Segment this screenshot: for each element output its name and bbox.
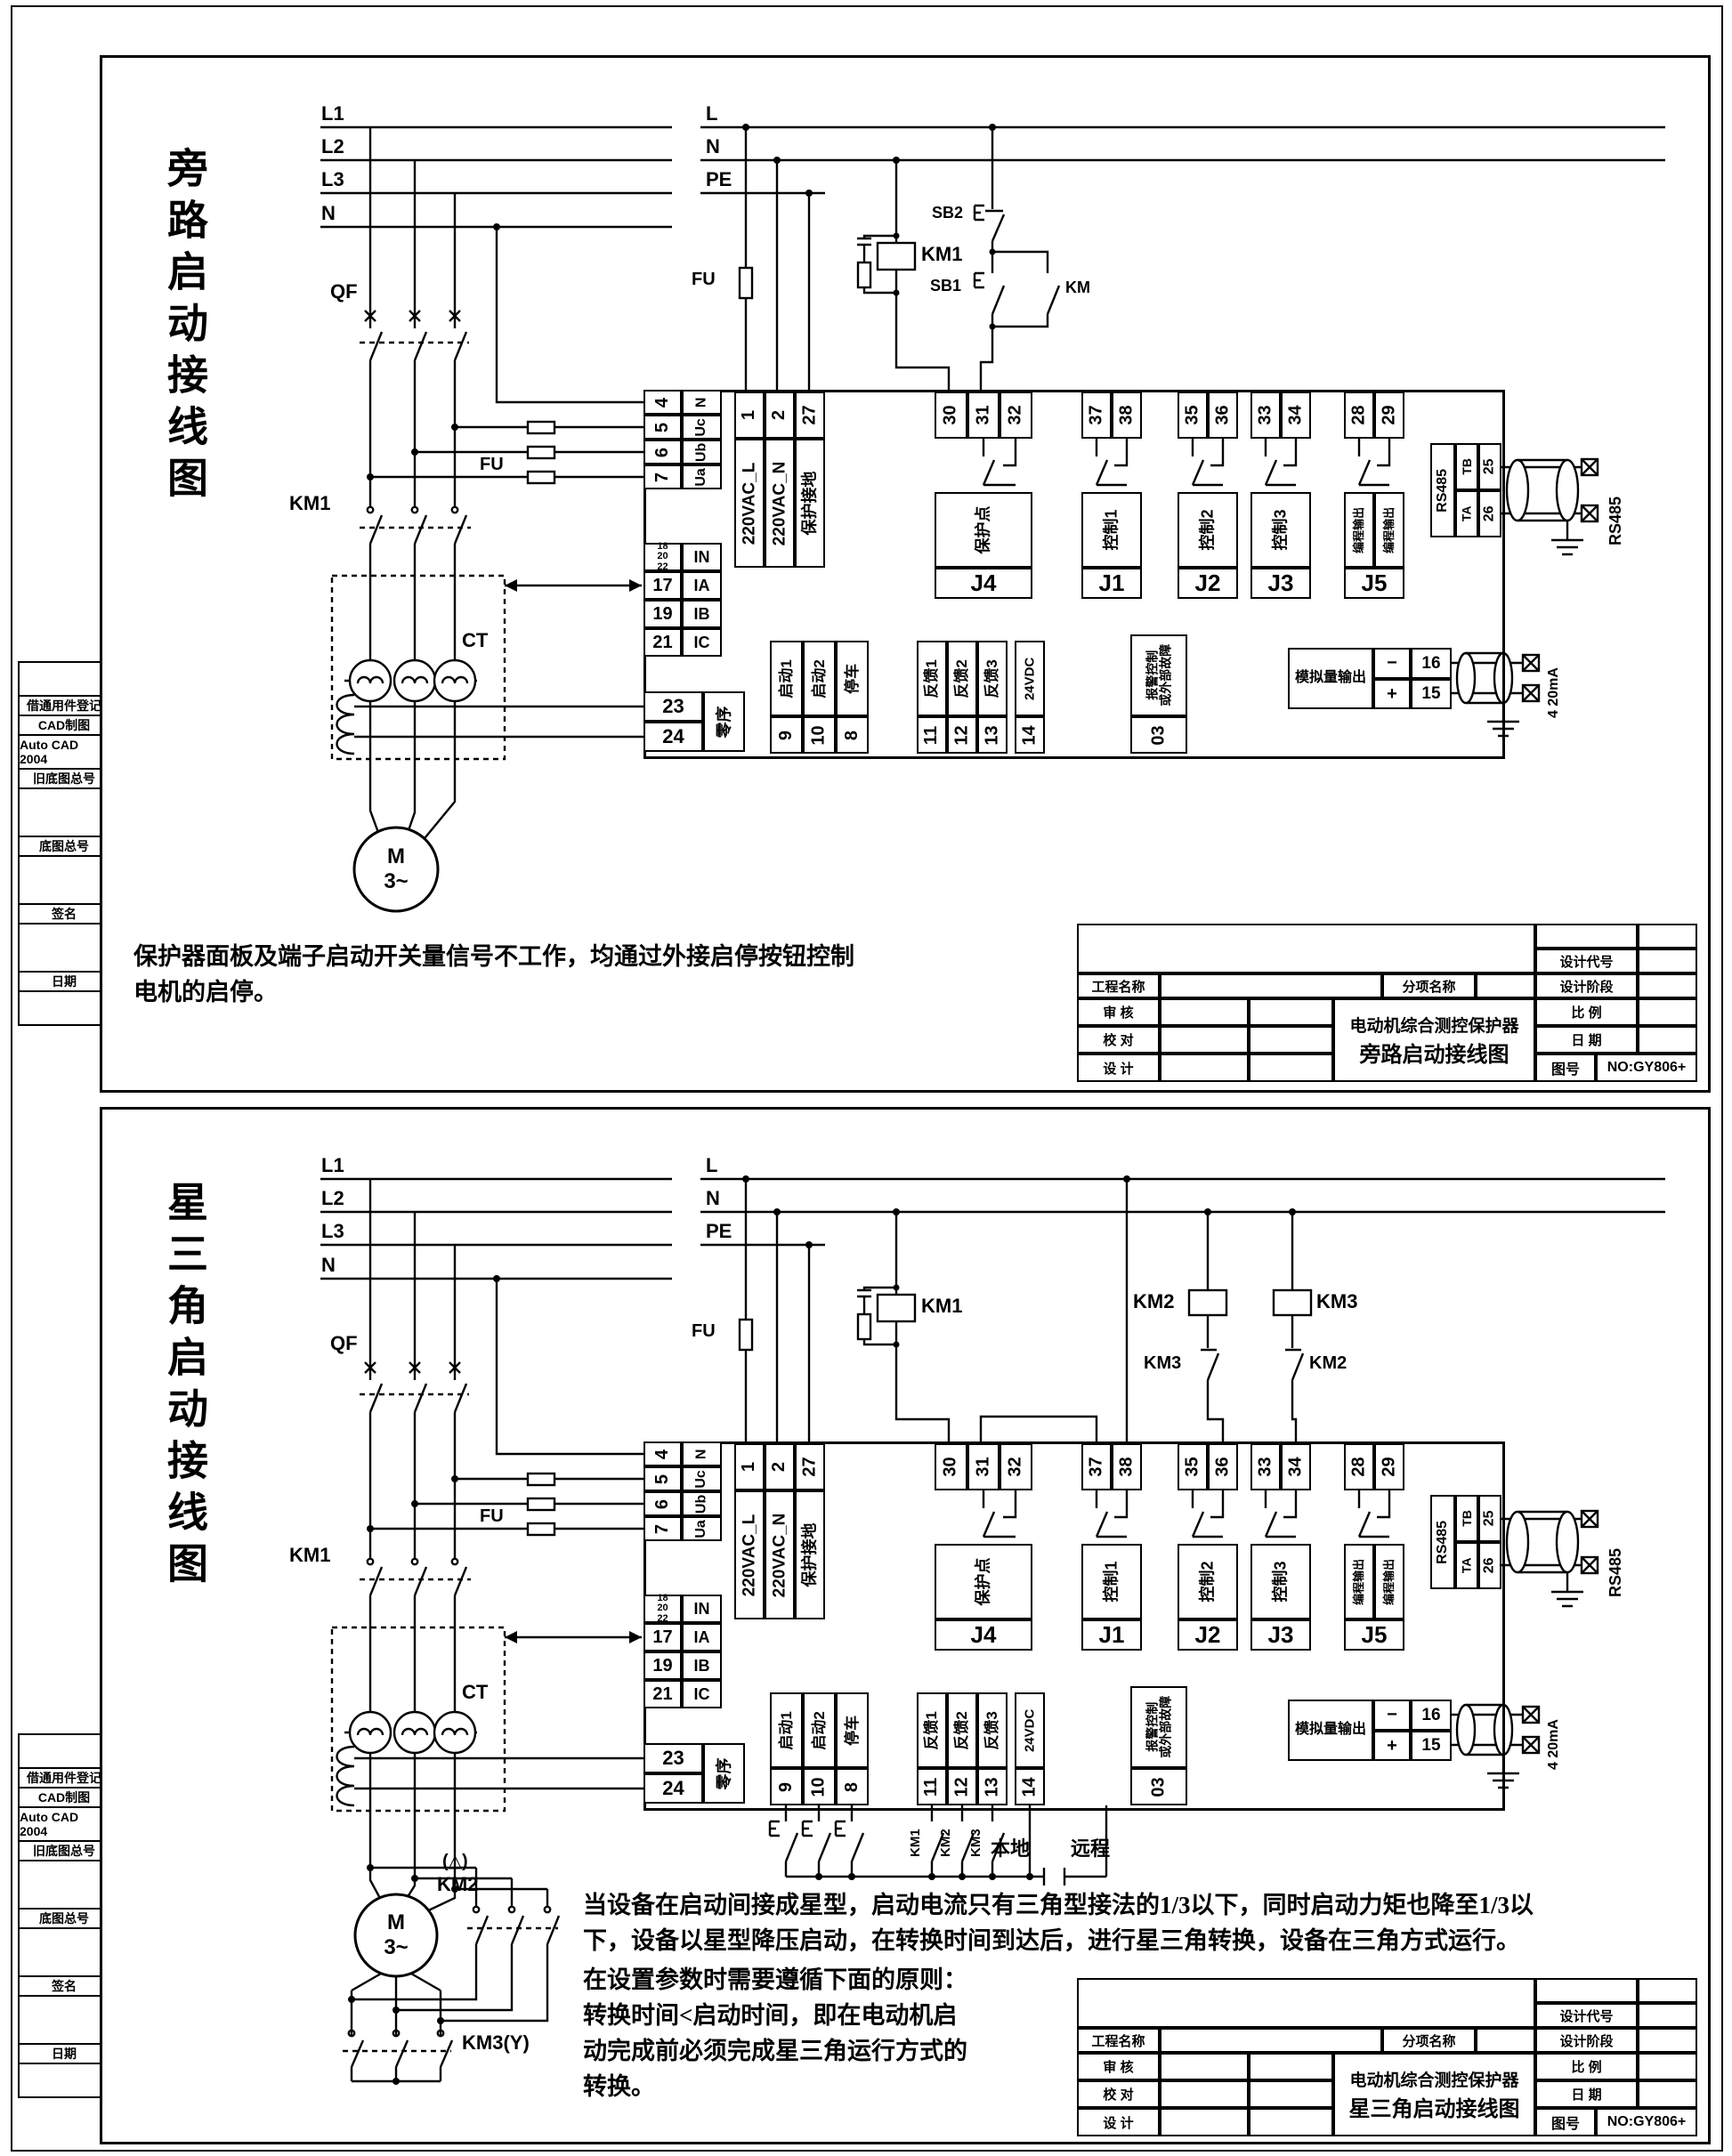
j5-label-1: 编程输出: [1344, 1544, 1374, 1619]
panel1-note: 保护器面板及端子启动开关量信号不工作，均通过外接启停按钮控制 电机的启停。: [134, 939, 1032, 1010]
terminal-26: 26: [1478, 1542, 1501, 1589]
tb-design-v1: [1160, 2108, 1249, 2136]
line-label-ctrl-pe: PE: [706, 1220, 732, 1242]
tb-review-v1: [1160, 2053, 1249, 2080]
terminal-6-label: Ub: [682, 440, 722, 464]
terminal-6: 6: [643, 440, 682, 464]
di-start1-label: 启动1: [770, 641, 803, 716]
tb-review-v2: [1249, 2053, 1333, 2080]
sidebar-item-old-base: 旧底图总号: [18, 768, 110, 789]
tb-review-label: 审 核: [1077, 998, 1160, 1026]
tb-scale-label: 比 例: [1535, 2053, 1638, 2080]
terminal-28: 28: [1344, 392, 1374, 439]
fu-main-label: FU: [480, 455, 504, 475]
sidebar-item-base: 底图总号: [18, 836, 110, 857]
terminal-4: 4: [643, 1441, 682, 1466]
tb-right-empty: [1535, 924, 1638, 949]
di-fb1-label: 反馈1: [917, 1692, 947, 1768]
terminal-1: 1: [734, 392, 765, 439]
sidebar-blank: [18, 855, 110, 905]
km2-delta-label: KM2: [437, 1873, 478, 1895]
sidebar-item-cad: CAD制图: [18, 1787, 110, 1808]
sidebar-item-old-base: 旧底图总号: [18, 1840, 110, 1861]
di-24vdc-label: 24VDC: [1015, 1692, 1045, 1768]
terminal-37: 37: [1081, 392, 1112, 439]
tb-center: 电动机综合测控保护器 旁路启动接线图: [1333, 998, 1535, 1082]
terminal-25: 25: [1478, 443, 1501, 490]
tb-design-stage-label: 设计阶段: [1535, 2028, 1638, 2053]
rs485-external-label: RS485: [1607, 497, 1625, 545]
km1-main-label: KM1: [289, 1544, 330, 1566]
terminal-4-label: N: [682, 390, 722, 415]
sidebar-bottom: 借通用件登记 CAD制图 Auto CAD 2004 旧底图总号 底图总号 签名…: [18, 1735, 110, 2098]
km3-interlock-label: KM3: [1144, 1353, 1181, 1374]
terminal-33: 33: [1250, 392, 1281, 439]
tb-design-code-label: 设计代号: [1535, 949, 1638, 973]
terminal-31: 31: [967, 392, 1000, 439]
sidebar-item-base: 底图总号: [18, 1908, 110, 1929]
km1-coil-label: KM1: [921, 243, 962, 265]
j2-label: 控制2: [1178, 1544, 1238, 1619]
terminal-in-label: IN: [682, 543, 722, 571]
terminal-5: 5: [643, 1466, 682, 1491]
tb-drawing-no-label: 图号: [1535, 2108, 1596, 2136]
line-label-n: N: [321, 1254, 336, 1276]
line-label-l2: L2: [321, 135, 344, 157]
tb-empty-top: [1077, 1978, 1535, 2028]
line-label-ctrl-pe: PE: [706, 168, 732, 190]
terminal-14: 14: [1015, 716, 1045, 754]
tb-date-value: [1638, 1026, 1697, 1054]
terminal-1-label: 220VAC_L: [734, 1490, 765, 1619]
tb-check-label: 校 对: [1077, 2080, 1160, 2108]
terminal-4-label: N: [682, 1441, 722, 1466]
terminal-11: 11: [917, 716, 947, 754]
terminal-19: 19: [643, 1651, 682, 1680]
sidebar-item-sign: 签名: [18, 1975, 110, 1997]
sidebar-blank: [18, 990, 110, 1026]
sidebar-item-date: 日期: [18, 971, 110, 992]
terminal-31: 31: [967, 1443, 1000, 1490]
line-label-ctrl-l: L: [706, 102, 717, 125]
line-label-ctrl-l: L: [706, 1154, 717, 1176]
terminal-ia-label: IA: [682, 1623, 722, 1651]
terminal-23: 23: [643, 691, 703, 722]
fu-ctrl-label: FU: [692, 270, 716, 290]
zero-seq-label: 零序: [703, 691, 745, 752]
sidebar-item-cad: CAD制图: [18, 715, 110, 736]
j5-name: J5: [1344, 1619, 1404, 1651]
terminal-21: 21: [643, 1680, 682, 1708]
j5-label-2: 编程输出: [1374, 1544, 1404, 1619]
panel-star-delta-start: 星三角启动接线图 L1 L2 L3 N L N PE QF FU KM1 CT …: [100, 1107, 1711, 2144]
terminal-27: 27: [795, 1443, 825, 1490]
terminal-33: 33: [1250, 1443, 1281, 1490]
line-label-ctrl-n: N: [706, 1187, 720, 1209]
delta-symbol-label: (△): [442, 1852, 468, 1872]
terminal-ic-label: IC: [682, 628, 722, 657]
terminal-7-label: Ua: [682, 464, 722, 489]
line-label-l2: L2: [321, 1187, 344, 1209]
terminal-6-label: Ub: [682, 1491, 722, 1516]
sidebar-blank: [18, 2063, 110, 2098]
di-start2-label: 启动2: [803, 641, 836, 716]
terminal-17: 17: [643, 571, 682, 600]
terminal-27: 27: [795, 392, 825, 439]
j5-label-2: 编程输出: [1374, 492, 1404, 568]
terminal-17: 17: [643, 1623, 682, 1651]
terminal-7: 7: [643, 464, 682, 489]
j3-label: 控制3: [1250, 492, 1311, 568]
tb-scale-value: [1638, 998, 1697, 1026]
j3-label: 控制3: [1250, 1544, 1311, 1619]
j2-label: 控制2: [1178, 492, 1238, 568]
j5-name: J5: [1344, 568, 1404, 599]
fu-ctrl-label: FU: [692, 1321, 716, 1342]
terminal-12: 12: [947, 1768, 977, 1805]
terminal-12: 12: [947, 716, 977, 754]
tb-check-v1: [1160, 2080, 1249, 2108]
terminal-27-label: 保护接地: [795, 439, 825, 568]
ct-label: CT: [462, 629, 488, 651]
sidebar-item-borrow: 借通用件登记: [18, 695, 110, 716]
zero-seq-label: 零序: [703, 1743, 745, 1804]
terminal-29: 29: [1374, 1443, 1404, 1490]
analog-output-label: 模拟量输出: [1288, 648, 1373, 709]
terminal-8: 8: [836, 716, 869, 754]
j2-name: J2: [1178, 1619, 1238, 1651]
tb-sub-label: 分项名称: [1382, 973, 1476, 998]
alarm-label: 报警控制 或外部故障: [1130, 1686, 1187, 1768]
di-stop-label: 停车: [836, 1692, 869, 1768]
rs485-ta: TA: [1455, 490, 1478, 537]
terminal-29: 29: [1374, 392, 1404, 439]
terminal-ib-label: IB: [682, 600, 722, 628]
line-label-l1: L1: [321, 102, 344, 125]
terminal-34: 34: [1281, 1443, 1311, 1490]
analog-output-label: 模拟量输出: [1288, 1700, 1373, 1761]
terminal-28: 28: [1344, 1443, 1374, 1490]
titleblock-star-delta: 工程名称 分项名称 审 核 校 对 设 计 电动机综合测控保护器 星三角启动接线…: [1077, 1978, 1697, 2136]
km-aux-label: KM: [1065, 279, 1090, 297]
rs485-ta: TA: [1455, 1542, 1478, 1589]
j2-name: J2: [1178, 568, 1238, 599]
tb-date-label: 日 期: [1535, 1026, 1638, 1054]
tb-drawing-no-value: NO:GY806+: [1596, 1054, 1697, 1082]
tb-drawing-title: 旁路启动接线图: [1360, 1037, 1509, 1068]
terminal-24: 24: [643, 1773, 703, 1804]
terminal-14: 14: [1015, 1768, 1045, 1805]
terminal-15: 15: [1411, 679, 1452, 709]
di-fb2-label: 反馈2: [947, 1692, 977, 1768]
panel-title-star-delta: 星三角启动接线图: [156, 1181, 214, 1594]
tb-project-value: [1160, 973, 1382, 998]
rs485-tb: TB: [1455, 443, 1478, 490]
tb-design-code-value: [1638, 949, 1697, 973]
km2-aux-label: KM2: [938, 1829, 953, 1857]
j4-label: 保护点: [935, 1544, 1032, 1619]
km2-interlock-label: KM2: [1309, 1353, 1347, 1374]
terminal-36: 36: [1208, 392, 1238, 439]
sidebar-item-autocad: Auto CAD 2004: [18, 734, 110, 770]
tb-check-v2: [1249, 1026, 1333, 1054]
line-label-l1: L1: [321, 1154, 344, 1176]
local-label: 本地: [991, 1837, 1030, 1860]
panel2-note-rules: 在设置参数时需要遵循下面的原则： 转换时间<启动时间，即在电动机启 动完成前必须…: [583, 1962, 1074, 2104]
motor-label: M 3~: [369, 844, 423, 893]
rs485-external-label: RS485: [1607, 1548, 1625, 1597]
terminal-ia-label: IA: [682, 571, 722, 600]
tb-design-v2: [1249, 2108, 1333, 2136]
rs485-label: RS485: [1430, 1495, 1455, 1589]
terminal-03: 03: [1130, 716, 1187, 754]
terminal-7-label: Ua: [682, 1516, 722, 1541]
terminal-7: 7: [643, 1516, 682, 1541]
terminal-38: 38: [1112, 392, 1142, 439]
tb-review-v1: [1160, 998, 1249, 1026]
tb-design-code-label: 设计代号: [1535, 2003, 1638, 2028]
tb-sub-value: [1476, 2028, 1535, 2053]
terminal-32: 32: [1000, 392, 1032, 439]
tb-sub-value: [1476, 973, 1535, 998]
terminal-23: 23: [643, 1743, 703, 1773]
panel-bypass-start: 旁路启动接线图 L1 L2 L3 N L N PE QF FU KM1 CT M…: [100, 55, 1711, 1093]
di-fb3-label: 反馈3: [977, 641, 1008, 716]
tb-project-value: [1160, 2028, 1382, 2053]
terminal-24: 24: [643, 722, 703, 752]
terminal-8: 8: [836, 1768, 869, 1805]
km3-aux-label: KM3: [968, 1829, 983, 1857]
tb-review-v2: [1249, 998, 1333, 1026]
j5-label-1: 编程输出: [1344, 492, 1374, 568]
terminal-9: 9: [770, 716, 803, 754]
terminal-ib-label: IB: [682, 1651, 722, 1680]
terminal-5: 5: [643, 415, 682, 440]
panel-title-bypass: 旁路启动接线图: [156, 147, 214, 508]
sb2-label: SB2: [932, 204, 963, 222]
terminal-03: 03: [1130, 1768, 1187, 1805]
tb-date-label: 日 期: [1535, 2080, 1638, 2108]
km2-coil-label: KM2: [1133, 1290, 1174, 1312]
terminal-16: 16: [1411, 1700, 1452, 1731]
sidebar-blank: [18, 923, 110, 973]
tb-right-empty: [1535, 1978, 1638, 2003]
terminal-9: 9: [770, 1768, 803, 1805]
tb-design-label: 设 计: [1077, 1054, 1160, 1082]
di-fb2-label: 反馈2: [947, 641, 977, 716]
sidebar-blank: [18, 1995, 110, 2045]
tb-scale-label: 比 例: [1535, 998, 1638, 1026]
tb-check-label: 校 对: [1077, 1026, 1160, 1054]
di-fb1-label: 反馈1: [917, 641, 947, 716]
terminal-in-label: IN: [682, 1595, 722, 1623]
j1-name: J1: [1081, 568, 1142, 599]
terminal-2-label: 220VAC_N: [765, 439, 795, 568]
di-stop-label: 停车: [836, 641, 869, 716]
alarm-label: 报警控制 或外部故障: [1130, 634, 1187, 716]
tb-project-label: 工程名称: [1077, 2028, 1160, 2053]
km1-coil-label: KM1: [921, 1295, 962, 1317]
terminal-13: 13: [977, 716, 1008, 754]
j4-label: 保护点: [935, 492, 1032, 568]
terminal-35: 35: [1178, 1443, 1208, 1490]
tb-product: 电动机综合测控保护器: [1349, 1013, 1518, 1037]
tb-review-label: 审 核: [1077, 2053, 1160, 2080]
analog-plus: +: [1373, 679, 1411, 709]
j4-name: J4: [935, 568, 1032, 599]
line-label-n: N: [321, 202, 336, 224]
tb-date-value: [1638, 2080, 1697, 2108]
tb-design-v1: [1160, 1054, 1249, 1082]
terminal-1: 1: [734, 1443, 765, 1490]
analog-minus: −: [1373, 648, 1411, 679]
terminal-1-label: 220VAC_L: [734, 439, 765, 568]
terminal-32: 32: [1000, 1443, 1032, 1490]
line-label-ctrl-n: N: [706, 135, 720, 157]
terminal-16: 16: [1411, 648, 1452, 679]
terminal-19: 19: [643, 600, 682, 628]
sidebar-blank: [18, 787, 110, 837]
km1-aux-label: KM1: [908, 1829, 923, 1857]
rs485-tb: TB: [1455, 1495, 1478, 1542]
di-start1-label: 启动1: [770, 1692, 803, 1768]
line-label-l3: L3: [321, 168, 344, 190]
qf-label: QF: [330, 1332, 358, 1354]
terminal-36: 36: [1208, 1443, 1238, 1490]
tb-right-empty2: [1638, 924, 1697, 949]
tb-design-stage-value: [1638, 2028, 1697, 2053]
sidebar-item-borrow: 借通用件登记: [18, 1767, 110, 1789]
terminal-26: 26: [1478, 490, 1501, 537]
terminal-ic-label: IC: [682, 1680, 722, 1708]
terminal-38: 38: [1112, 1443, 1142, 1490]
sidebar-blank: [18, 1733, 110, 1769]
terminal-2: 2: [765, 392, 795, 439]
j3-name: J3: [1250, 568, 1311, 599]
sidebar-item-autocad: Auto CAD 2004: [18, 1806, 110, 1842]
tb-center: 电动机综合测控保护器 星三角启动接线图: [1333, 2053, 1535, 2136]
drawing-sheet: { "sidebar": { "items": ["借通用件登记", "CAD制…: [0, 0, 1732, 2156]
km1-main-label: KM1: [289, 492, 330, 514]
tb-design-stage-label: 设计阶段: [1535, 973, 1638, 998]
tb-check-v2: [1249, 2080, 1333, 2108]
terminal-21: 21: [643, 628, 682, 657]
km3-coil-label: KM3: [1316, 1290, 1357, 1312]
terminal-5-label: Uc: [682, 1466, 722, 1491]
terminal-6: 6: [643, 1491, 682, 1516]
analog-minus: −: [1373, 1700, 1411, 1731]
di-24vdc-label: 24VDC: [1015, 641, 1045, 716]
sb1-label: SB1: [930, 277, 961, 295]
terminal-34: 34: [1281, 392, 1311, 439]
tb-right-empty2: [1638, 1978, 1697, 2003]
tb-drawing-no-value: NO:GY806+: [1596, 2108, 1697, 2136]
tb-design-stage-value: [1638, 973, 1697, 998]
tb-design-v2: [1249, 1054, 1333, 1082]
j1-label: 控制1: [1081, 1544, 1142, 1619]
sidebar-item-date: 日期: [18, 2043, 110, 2064]
tb-drawing-no-label: 图号: [1535, 1054, 1596, 1082]
j4-name: J4: [935, 1619, 1032, 1651]
terminal-11: 11: [917, 1768, 947, 1805]
sidebar-blank: [18, 1860, 110, 1910]
terminal-10: 10: [803, 716, 836, 754]
terminal-30: 30: [935, 392, 967, 439]
analog-plus: +: [1373, 1731, 1411, 1761]
terminal-10: 10: [803, 1768, 836, 1805]
tb-scale-value: [1638, 2053, 1697, 2080]
terminal-35: 35: [1178, 392, 1208, 439]
terminal-in-nums: 18 20 22: [643, 543, 682, 571]
analog-external-label: 4 20mA: [1546, 667, 1562, 718]
titleblock-bypass: 工程名称 分项名称 审 核 校 对 设 计 电动机综合测控保护器 旁路启动接线图…: [1077, 924, 1697, 1082]
sidebar-blank: [18, 1927, 110, 1977]
tb-check-v1: [1160, 1026, 1249, 1054]
qf-label: QF: [330, 280, 358, 303]
motor-label: M 3~: [369, 1910, 423, 1959]
analog-external-label: 4 20mA: [1546, 1719, 1562, 1770]
di-fb3-label: 反馈3: [977, 1692, 1008, 1768]
sidebar-blank: [18, 661, 110, 697]
sidebar-item-sign: 签名: [18, 903, 110, 925]
remote-label: 远程: [1071, 1837, 1110, 1860]
tb-drawing-title: 星三角启动接线图: [1349, 2091, 1520, 2122]
terminal-2-label: 220VAC_N: [765, 1490, 795, 1619]
panel2-note-main: 当设备在启动间接成星型，启动电流只有三角型接法的1/3以下，同时启动力矩也降至1…: [583, 1887, 1701, 1958]
j1-name: J1: [1081, 1619, 1142, 1651]
di-start2-label: 启动2: [803, 1692, 836, 1768]
terminal-2: 2: [765, 1443, 795, 1490]
sidebar-top: 借通用件登记 CAD制图 Auto CAD 2004 旧底图总号 底图总号 签名…: [18, 663, 110, 1026]
tb-sub-label: 分项名称: [1382, 2028, 1476, 2053]
terminal-in-nums: 18 20 22: [643, 1595, 682, 1623]
terminal-25: 25: [1478, 1495, 1501, 1542]
tb-project-label: 工程名称: [1077, 973, 1160, 998]
fu-main-label: FU: [480, 1506, 504, 1527]
terminal-30: 30: [935, 1443, 967, 1490]
tb-product: 电动机综合测控保护器: [1349, 2067, 1518, 2091]
km3-star-label: KM3(Y): [462, 2031, 530, 2054]
line-label-l3: L3: [321, 1220, 344, 1242]
rs485-label: RS485: [1430, 443, 1455, 537]
terminal-4: 4: [643, 390, 682, 415]
ct-label: CT: [462, 1681, 488, 1703]
terminal-15: 15: [1411, 1731, 1452, 1761]
j1-label: 控制1: [1081, 492, 1142, 568]
j3-name: J3: [1250, 1619, 1311, 1651]
tb-design-label: 设 计: [1077, 2108, 1160, 2136]
tb-empty-top: [1077, 924, 1535, 973]
terminal-13: 13: [977, 1768, 1008, 1805]
terminal-37: 37: [1081, 1443, 1112, 1490]
terminal-5-label: Uc: [682, 415, 722, 440]
tb-design-code-value: [1638, 2003, 1697, 2028]
terminal-27-label: 保护接地: [795, 1490, 825, 1619]
